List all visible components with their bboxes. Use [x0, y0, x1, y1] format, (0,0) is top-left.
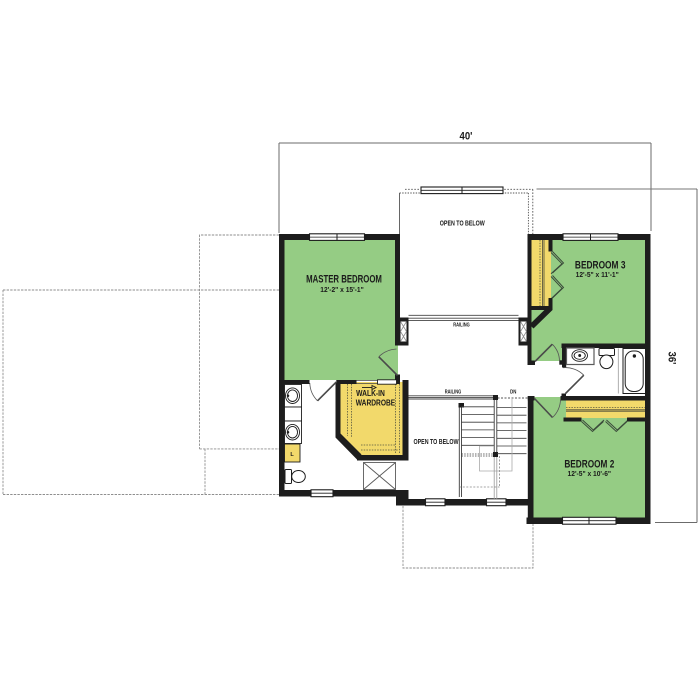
svg-text:36': 36'	[665, 352, 677, 365]
svg-text:RAILING: RAILING	[453, 322, 470, 329]
svg-text:OPEN TO BELOW: OPEN TO BELOW	[440, 220, 485, 228]
svg-text:MASTER BEDROOM: MASTER BEDROOM	[306, 273, 382, 286]
svg-text:12'-2" x 15'-1": 12'-2" x 15'-1"	[320, 286, 364, 294]
svg-text:RAILING: RAILING	[445, 389, 462, 396]
svg-text:WARDROBE: WARDROBE	[356, 398, 396, 408]
svg-text:12'-5" x 10'-6": 12'-5" x 10'-6"	[568, 470, 612, 478]
svg-text:40': 40'	[460, 131, 473, 143]
svg-text:DN: DN	[510, 389, 517, 396]
svg-text:12'-5" x 11'-1": 12'-5" x 11'-1"	[576, 271, 619, 279]
svg-text:OPEN TO BELOW: OPEN TO BELOW	[413, 438, 458, 446]
